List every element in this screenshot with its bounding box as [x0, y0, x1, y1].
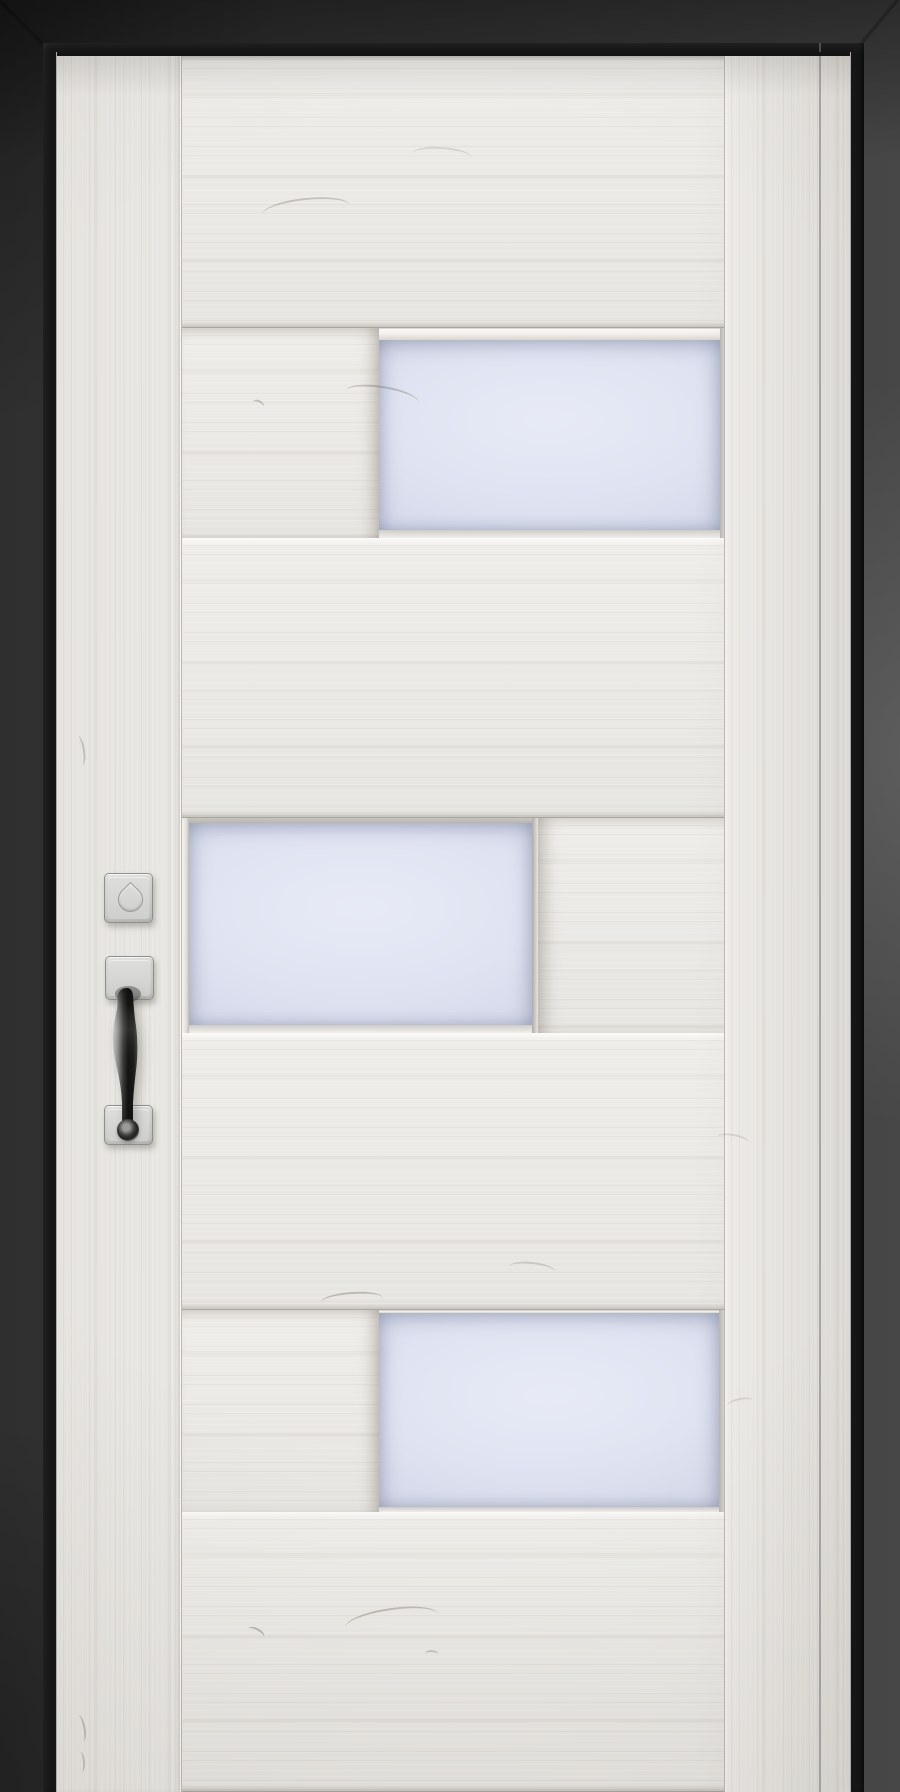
door-handle-grip [107, 985, 143, 1135]
door-section-panel-row-1 [182, 328, 727, 538]
door [56, 52, 851, 1792]
recess-wood-segment [182, 328, 379, 538]
recess-wood-segment [538, 818, 727, 1033]
handle-ring-knuckle [117, 1119, 139, 1141]
frosted-glass-panel [189, 823, 532, 1025]
frame-miter-seam-left [0, 0, 44, 45]
door-section-plank-4 [182, 1512, 727, 1792]
door-stile-right [724, 52, 850, 1792]
jamb-edge-highlight [819, 43, 821, 1792]
door-section-panel-row-3 [182, 1310, 727, 1512]
keyhole-droplet-emblem [113, 882, 148, 917]
frosted-glass-panel [379, 340, 720, 530]
frosted-glass-panel [379, 1313, 719, 1507]
door-frame-jamb [43, 43, 864, 1792]
recess-wood-segment [182, 1310, 379, 1512]
wall [0, 0, 900, 1792]
deadbolt-rosette [104, 873, 153, 923]
frame-miter-seam-right [861, 0, 900, 44]
door-section-panel-row-2 [182, 818, 727, 1033]
door-section-plank-3 [182, 1033, 727, 1310]
door-section-plank-2 [182, 538, 727, 818]
door-center-panels [181, 52, 727, 1792]
door-section-plank-1 [182, 52, 727, 328]
